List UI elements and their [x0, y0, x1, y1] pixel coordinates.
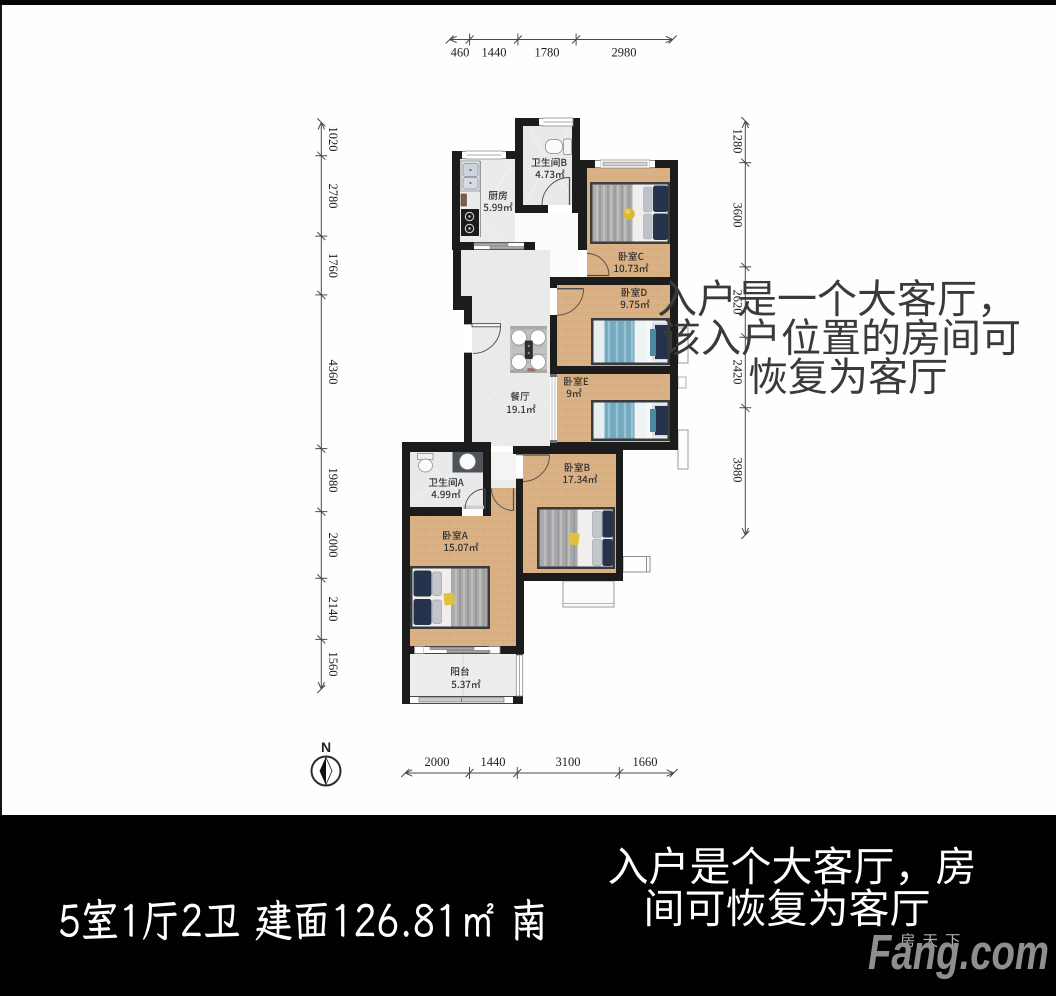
svg-text:1760: 1760 — [326, 253, 340, 278]
svg-text:2000: 2000 — [425, 755, 450, 769]
svg-text:1020: 1020 — [326, 127, 340, 152]
svg-text:3980: 3980 — [731, 458, 745, 483]
svg-text:2140: 2140 — [326, 597, 340, 622]
svg-text:1980: 1980 — [326, 468, 340, 493]
svg-text:2780: 2780 — [326, 184, 340, 209]
svg-text:460: 460 — [451, 46, 470, 60]
svg-text:1440: 1440 — [481, 755, 506, 769]
svg-text:1440: 1440 — [482, 46, 507, 60]
svg-text:4360: 4360 — [326, 360, 340, 385]
svg-text:1780: 1780 — [535, 46, 560, 60]
svg-text:1560: 1560 — [326, 652, 340, 677]
svg-text:3600: 3600 — [731, 203, 745, 228]
svg-text:1280: 1280 — [731, 129, 745, 154]
svg-text:3100: 3100 — [556, 755, 581, 769]
svg-text:N: N — [321, 739, 331, 755]
svg-text:1660: 1660 — [633, 755, 658, 769]
svg-text:2980: 2980 — [612, 46, 637, 60]
svg-text:Fang.com: Fang.com — [868, 926, 1049, 980]
svg-text:2420: 2420 — [731, 360, 745, 385]
svg-text:2000: 2000 — [326, 533, 340, 558]
